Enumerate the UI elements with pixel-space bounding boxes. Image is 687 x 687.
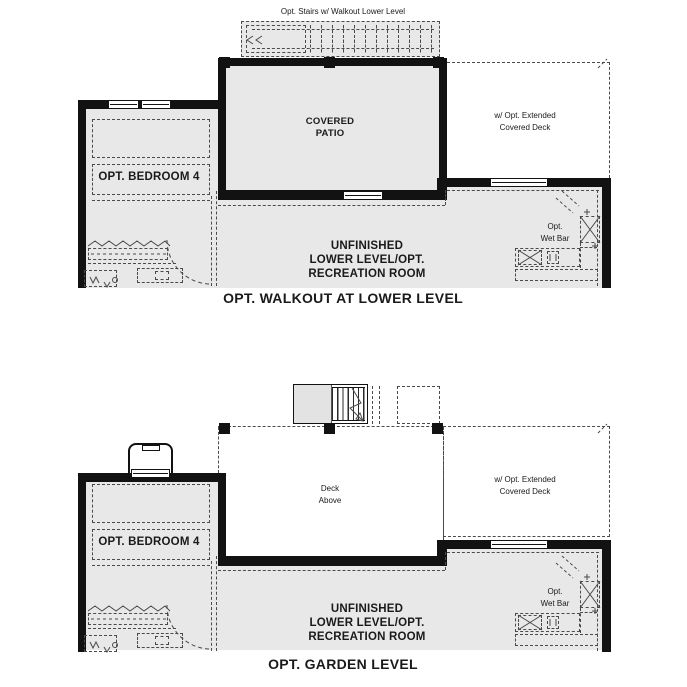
stair-treads	[332, 387, 365, 421]
stair-rail-line	[372, 386, 373, 424]
deck-post	[432, 423, 443, 434]
stair-landing	[294, 385, 332, 423]
mech-equipment-outline	[84, 635, 117, 652]
plan-caption: OPT. GARDEN LEVEL	[178, 656, 508, 672]
wet-bar-cabinetry	[515, 634, 598, 646]
deck-above-line	[445, 552, 446, 570]
exterior-wall	[602, 540, 611, 652]
plan-opt-garden: Deck Above w/ Opt. Extended Covered Deck…	[0, 0, 687, 687]
bedroom4-zone-outline	[92, 565, 210, 566]
deck-above-label: Deck Above	[303, 483, 357, 506]
exterior-wall	[218, 556, 447, 566]
stair-landing-above	[397, 386, 440, 424]
floorplan-sheet: { "colors": { "fill": "#e8e8e8", "wall":…	[0, 0, 687, 687]
optional-wall-line	[211, 561, 212, 651]
wet-bar-sink	[518, 615, 542, 630]
stair-rail-line	[379, 386, 380, 424]
window-well-ladder	[142, 445, 160, 451]
window	[490, 540, 548, 549]
deck-post	[219, 423, 230, 434]
bedroom4-label: OPT. BEDROOM 4	[88, 536, 210, 549]
optional-wall-line	[216, 556, 217, 651]
exterior-wall	[218, 473, 226, 566]
wet-bar-label: Opt. Wet Bar	[532, 586, 578, 609]
exterior-wall	[78, 473, 86, 652]
deck-above-line	[218, 570, 445, 571]
mech-equipment-outline	[155, 636, 169, 645]
mech-equipment-outline	[88, 628, 176, 629]
wet-bar-cabinetry	[580, 612, 597, 613]
bedroom4-zone-outline	[92, 484, 210, 523]
wet-bar-cabinetry	[547, 616, 559, 629]
deck-stairs	[293, 384, 368, 424]
mech-equipment-outline	[88, 613, 168, 625]
recreation-room-label: UNFINISHED LOWER LEVEL/OPT. RECREATION R…	[288, 602, 446, 644]
extended-deck-label: w/ Opt. Extended Covered Deck	[463, 474, 587, 497]
deck-above-line	[447, 552, 599, 553]
wet-bar-sink	[580, 581, 600, 608]
window-well-window	[131, 469, 170, 478]
deck-post	[324, 423, 335, 434]
